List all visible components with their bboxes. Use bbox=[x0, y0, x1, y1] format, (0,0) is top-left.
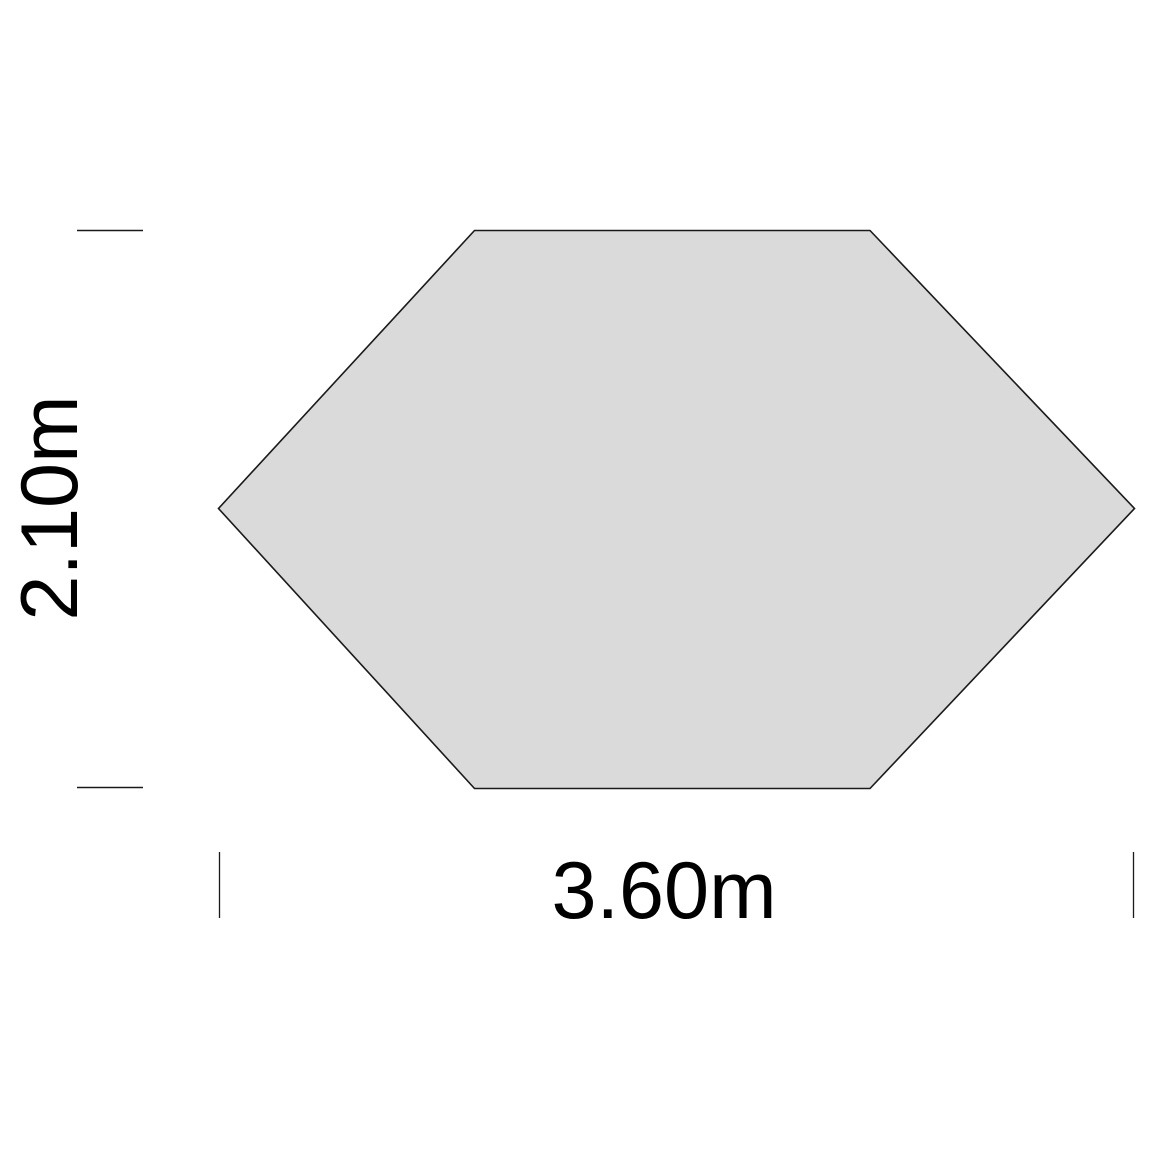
svg-text:3.60m: 3.60m bbox=[551, 846, 776, 936]
svg-text:2.10m: 2.10m bbox=[5, 395, 95, 620]
